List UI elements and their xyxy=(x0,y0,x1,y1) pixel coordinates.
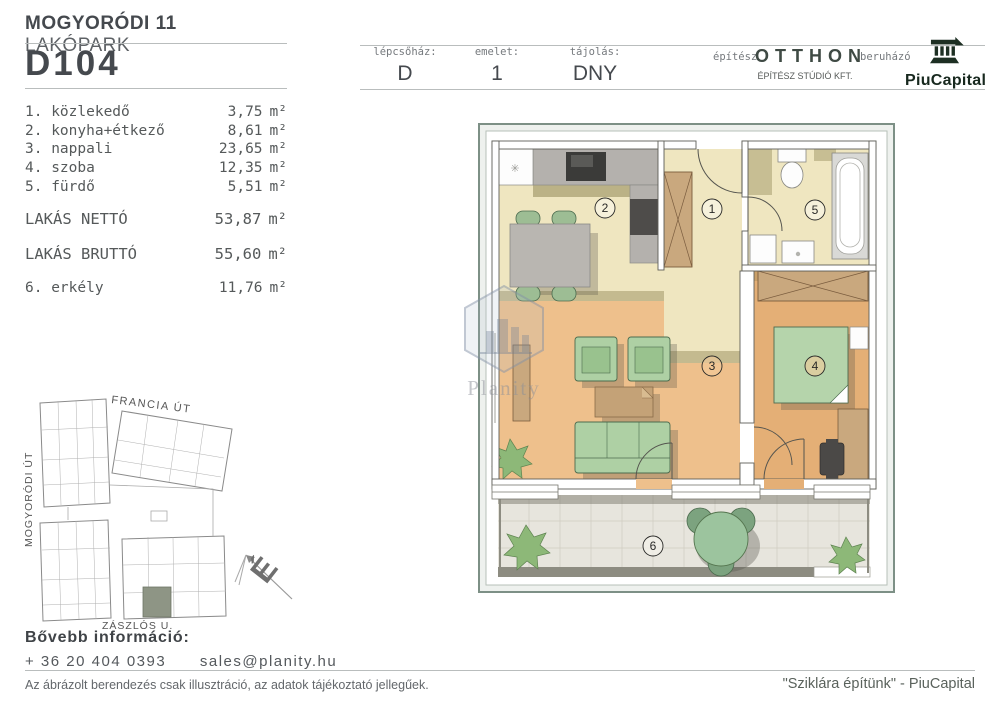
footer-rule xyxy=(25,670,975,671)
room-number-4: 4 xyxy=(812,359,819,373)
orientation-label: tájolás: xyxy=(555,46,635,58)
compass: É xyxy=(235,550,292,599)
sofa xyxy=(575,422,678,481)
info-cell-staircase: lépcsőház: D xyxy=(370,46,440,86)
project-name-bold: MOGYORÓDI 11 xyxy=(25,13,177,34)
balcony-area-row: 6. erkély11,76m² xyxy=(25,280,287,302)
balcony xyxy=(498,495,870,577)
room-number-3: 3 xyxy=(709,359,716,373)
room-number-2: 2 xyxy=(602,201,609,215)
dining-set xyxy=(510,211,598,301)
floor-label: emelet: xyxy=(462,46,532,58)
area-table: 1. közlekedő3,75m² 2. konyha+étkező8,61m… xyxy=(25,104,287,302)
bedroom-wardrobe xyxy=(758,271,868,301)
architect-logo: OTTHON ÉPÍTÉSZ STÚDIÓ KFT. xyxy=(755,46,855,81)
gross-area-row: LAKÁS BRUTTÓ55,60m² xyxy=(25,245,287,267)
floorplan: ✳ xyxy=(478,123,895,598)
bathtub xyxy=(832,153,868,259)
nightstand xyxy=(850,327,868,349)
street-label-left: MOGYORÓDI ÚT xyxy=(22,452,35,547)
dining-table xyxy=(510,224,590,287)
floorplan-drawing: ✳ xyxy=(478,123,895,593)
area-row: 2. konyha+étkező8,61m² xyxy=(25,123,287,142)
hall-wardrobe xyxy=(664,172,692,267)
site-map-drawing: FRANCIA ÚT MOGYORÓDI ÚT ZÁSZLÓS U. É xyxy=(18,385,303,635)
contact-email[interactable]: sales@planity.hu xyxy=(200,653,337,670)
developer-logo: PiuCapital xyxy=(905,36,985,90)
washing-machine xyxy=(750,235,776,263)
info-rule-bottom xyxy=(360,89,985,90)
footer-disclaimer: Az ábrázolt berendezés csak illusztráció… xyxy=(25,678,429,692)
bathroom-sink xyxy=(782,241,814,263)
svg-text:✳: ✳ xyxy=(510,163,519,175)
staircase-label: lépcsőház: xyxy=(370,46,440,58)
area-row: 5. fürdő5,51m² xyxy=(25,179,287,198)
desk-chair xyxy=(820,439,844,479)
footer-slogan: "Sziklára építünk" - PiuCapital xyxy=(783,676,975,692)
floor-value: 1 xyxy=(462,62,532,86)
room-number-5: 5 xyxy=(812,203,819,217)
area-row: 4. szoba12,35m² xyxy=(25,160,287,179)
info-cell-floor: emelet: 1 xyxy=(462,46,532,86)
contact-phone[interactable]: + 36 20 404 0393 xyxy=(25,653,166,670)
architect-logo-main: OTTHON xyxy=(755,46,855,67)
area-row: 3. nappali23,65m² xyxy=(25,141,287,160)
highlighted-unit xyxy=(143,587,171,617)
sideboard xyxy=(513,345,530,421)
contact-block: Bővebb információ: + 36 20 404 0393 sale… xyxy=(25,629,337,670)
orientation-value: DNY xyxy=(555,62,635,86)
info-cell-orientation: tájolás: DNY xyxy=(555,46,635,86)
net-area-row: LAKÁS NETTÓ53,87m² xyxy=(25,210,287,232)
balcony-table xyxy=(694,512,748,566)
piucapital-column-icon xyxy=(924,36,966,66)
site-map: FRANCIA ÚT MOGYORÓDI ÚT ZÁSZLÓS U. É xyxy=(18,385,303,640)
area-row: 1. közlekedő3,75m² xyxy=(25,104,287,123)
unit-id: D104 xyxy=(25,44,121,84)
flyer-page: MOGYORÓDI 11 LAKÓPARK D104 lépcsőház: D … xyxy=(0,0,1000,707)
contact-heading: Bővebb információ: xyxy=(25,629,337,647)
fridge: ✳ xyxy=(498,149,533,185)
room-number-1: 1 xyxy=(709,202,716,216)
header-rule-bottom xyxy=(25,88,287,89)
developer-label: beruházó xyxy=(860,51,911,63)
developer-logo-text: PiuCapital xyxy=(905,72,985,90)
coffee-table xyxy=(595,387,660,424)
staircase-value: D xyxy=(370,62,440,86)
room-number-6: 6 xyxy=(650,539,657,553)
info-rule-top xyxy=(360,45,985,46)
architect-label: építész xyxy=(713,51,757,63)
architect-logo-sub: ÉPÍTÉSZ STÚDIÓ KFT. xyxy=(755,71,855,81)
